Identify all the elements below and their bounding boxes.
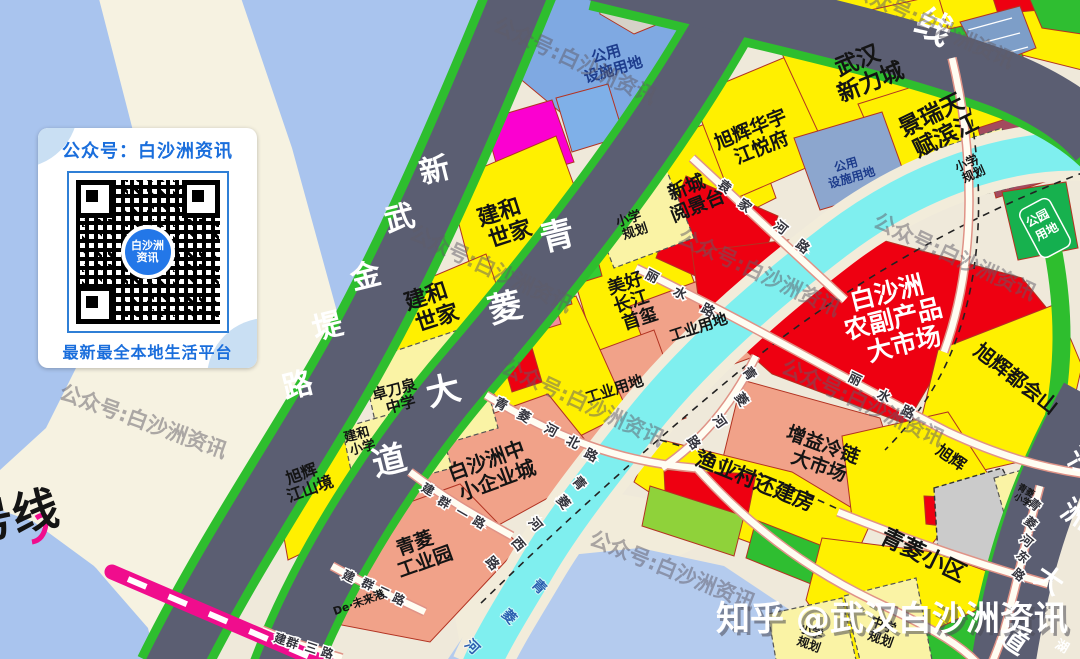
- zhihu-watermark: 知乎 @武汉白沙洲资讯: [716, 599, 1068, 639]
- qr-promo-card: 公众号：白沙洲资讯 白沙洲 资讯 最新最全本地生活平台: [38, 128, 257, 368]
- qr-finder-icon: [182, 180, 220, 218]
- qr-finder-icon: [76, 180, 114, 218]
- qr-code: 白沙洲 资讯: [67, 171, 229, 333]
- qr-logo-line2: 资讯: [137, 252, 159, 264]
- qr-card-title: 公众号：白沙洲资讯: [38, 137, 257, 163]
- qr-logo-text: 白沙洲 资讯: [125, 229, 171, 275]
- planning-map: 号线 河 新 武 金 堤 路 青 菱 大 道 线 沙 洲 大 道 湖 袁 家 河: [0, 0, 1080, 659]
- qr-finder-icon: [76, 286, 114, 324]
- qr-center-logo: 白沙洲 资讯: [121, 225, 175, 279]
- qr-card-footer: 最新最全本地生活平台: [38, 339, 257, 363]
